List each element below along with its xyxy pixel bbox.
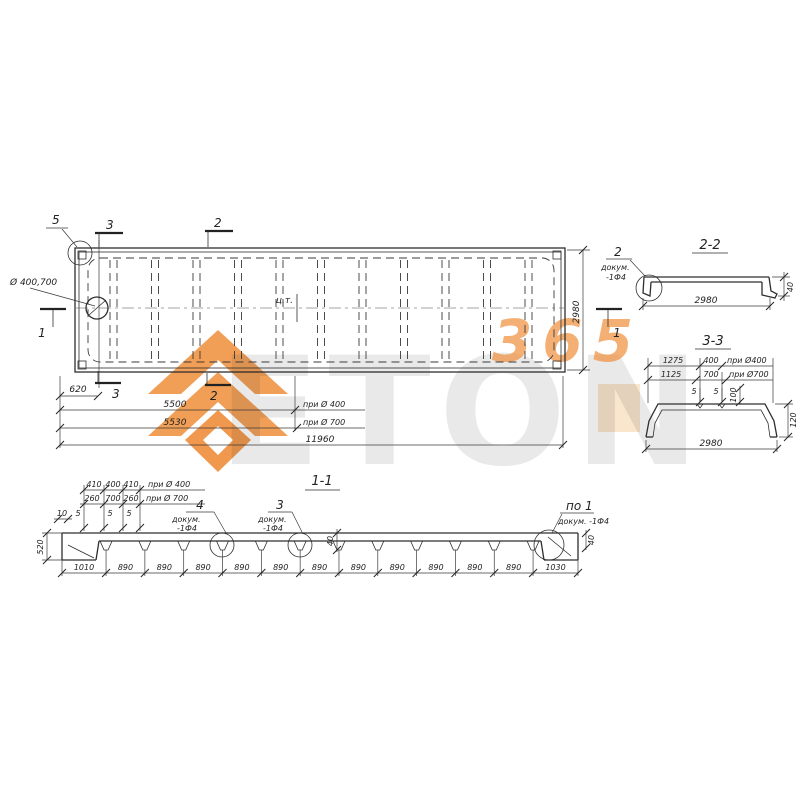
s11-row2-b: 700	[105, 494, 120, 503]
section-2-2-view: 2-2 2 докум. -1Ф4 2980 40	[600, 238, 795, 310]
s11-row1-a: 410	[86, 480, 101, 489]
dim-1275: 1275	[663, 356, 683, 365]
s11-row1-c: 410	[123, 480, 138, 489]
plan-section-2-top: 2	[214, 216, 222, 230]
s11-row3-5c: 5	[126, 509, 131, 518]
s11-callout-3-doc: докум.	[257, 515, 287, 524]
s11-bottom-dim-label: 890	[428, 563, 443, 572]
s11-row3-5a: 5	[75, 509, 80, 518]
s11-bottom-dim-label: 890	[157, 563, 172, 572]
dim-5530: 5530	[164, 418, 187, 428]
s11-bottom-dim-label: 890	[351, 563, 366, 572]
section-2-2-callout-ref: -1Ф4	[606, 273, 626, 282]
corner-detail-circle	[68, 241, 92, 265]
s11-row3-5b: 5	[107, 509, 112, 518]
dim-120: 120	[789, 412, 798, 427]
s11-bottom-dim-label: 890	[312, 563, 327, 572]
s11-rib-notches	[100, 541, 539, 550]
dim-5500: 5500	[164, 400, 187, 410]
s11-callout-4-doc: докум.	[171, 515, 201, 524]
dim-400-note: при Ø400	[727, 355, 767, 365]
s11-callout-3-ref: -1Ф4	[263, 524, 283, 533]
section-2-2-title: 2-2	[699, 238, 720, 253]
dim-700: 700	[703, 370, 718, 379]
plan-callout-5: 5	[52, 213, 60, 227]
plan-section-1-left: 1	[38, 326, 46, 340]
hole-diameter-label: Ø 400,700	[9, 277, 57, 288]
s11-bottom-dim-label: 890	[390, 563, 405, 572]
section-2-2-width-dim: 2980	[695, 296, 718, 306]
dim-700-note: при Ø700	[729, 369, 769, 379]
plan-rib-lines	[110, 260, 532, 360]
s11-bottom-dim-label: 890	[118, 563, 133, 572]
s11-left-height-dim: 520	[36, 539, 45, 554]
s11-bottom-dim-label: 890	[273, 563, 288, 572]
s11-row1-b: 400	[105, 480, 120, 489]
s11-callout-po1-doc: докум. -1Ф4	[557, 517, 609, 526]
s11-bottom-dim-label: 890	[467, 563, 482, 572]
s11-row2-c: 260	[123, 494, 138, 503]
s11-bottom-dim-label: 890	[234, 563, 249, 572]
section-2-2-thickness-dim: 40	[786, 282, 795, 292]
dim-1125: 1125	[661, 370, 681, 379]
gap-left-dim: 5	[691, 387, 696, 396]
s11-callout-4-ref: -1Ф4	[177, 524, 197, 533]
edge-dim: 620	[69, 385, 86, 395]
s11-row2-a: 260	[84, 494, 99, 503]
s11-row3-10: 10	[57, 509, 67, 518]
s11-callout-3-num: 3	[276, 498, 284, 512]
s11-callout-po1: по 1	[566, 499, 593, 513]
s11-bottom-dim-label: 890	[195, 563, 210, 572]
s11-detail-circle-4	[210, 533, 234, 557]
s11-rib-depth-b: 40	[587, 535, 596, 545]
s11-rib-depth-a: 40	[326, 536, 335, 546]
s11-row1-note: при Ø 400	[148, 479, 190, 489]
s11-bottom-dim-label: 890	[506, 563, 521, 572]
s11-callout-4-num: 4	[196, 498, 204, 512]
drawing-sheet: ETON 365 Ø 400,700 ц.т.	[0, 0, 800, 800]
section-1-1-title: 1-1	[311, 474, 332, 489]
plan-section-2-bottom: 2	[210, 389, 218, 403]
s11-bottom-dim-label: 1010	[74, 563, 94, 572]
center-of-gravity-label: ц.т.	[276, 296, 293, 306]
s11-bottom-dim-label: 1030	[545, 563, 565, 572]
dim-100: 100	[729, 387, 738, 402]
plan-view: Ø 400,700 ц.т. 5 3 2 1 1	[9, 213, 622, 449]
s11-detail-circle-end	[534, 530, 564, 560]
s11-row2-note: при Ø 700	[146, 493, 188, 503]
plan-height-dim: 2980	[572, 300, 582, 323]
dim-400: 400	[703, 356, 718, 365]
section-3-3-title: 3-3	[702, 334, 723, 349]
plan-section-3-top: 3	[106, 218, 114, 232]
s11-bottom-dims: 1010890890890890890890890890890890890103…	[58, 550, 582, 577]
section-3-3-width-dim: 2980	[700, 439, 723, 449]
plan-section-1-right: 1	[613, 326, 621, 340]
section-2-2-detail-circle	[636, 275, 662, 301]
gap-right-dim: 5	[713, 387, 718, 396]
section-2-2-callout-doc: докум.	[600, 263, 630, 272]
technical-drawing: Ø 400,700 ц.т. 5 3 2 1 1	[0, 0, 800, 800]
dim-5530-note: при Ø 700	[303, 417, 345, 427]
section-2-2-callout-num: 2	[614, 245, 622, 259]
plan-section-3-bottom: 3	[112, 387, 120, 401]
section-3-3-view: 3-3 1275 400 при Ø400 1125 700 при Ø700 …	[642, 334, 798, 453]
section-1-1-view: 1-1 410 400 410 при Ø 400 260 700 260 пр…	[36, 474, 609, 577]
dim-5500-note: при Ø 400	[303, 399, 345, 409]
total-length-dim: 11960	[306, 435, 335, 445]
